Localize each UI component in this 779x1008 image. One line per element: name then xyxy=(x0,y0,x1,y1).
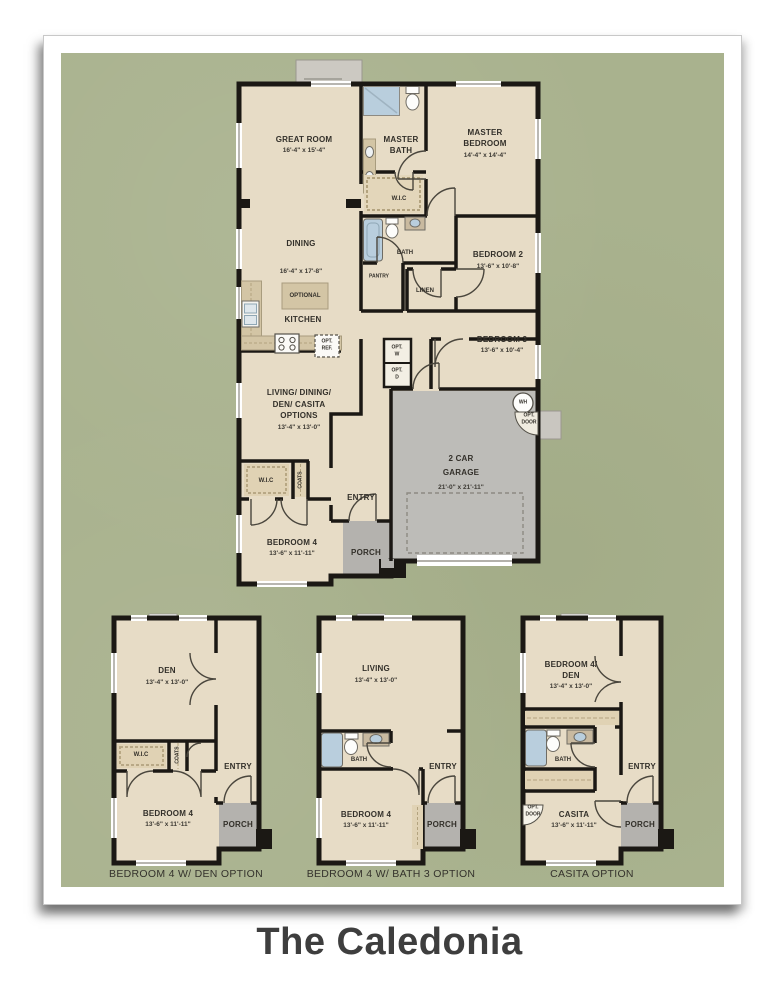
den-option-wic-label: W.I.C xyxy=(134,752,149,758)
den-option-entry-label: ENTRY xyxy=(224,763,252,771)
plan-title: The Caledonia xyxy=(0,921,779,964)
hall-bath-label: BATH xyxy=(397,250,413,256)
den-option-caption: BEDROOM 4 W/ DEN OPTION xyxy=(109,869,263,880)
den-label: DEN xyxy=(158,667,176,675)
master-bath-label-1: MASTER xyxy=(384,136,419,144)
bedroom2-label: BEDROOM 2 xyxy=(473,251,523,259)
opt-door-label-1: OPT. xyxy=(523,414,534,419)
linen-label: LINEN xyxy=(416,288,434,294)
den-option-porch-label: PORCH xyxy=(223,821,253,829)
den-option-coats-label: COATS xyxy=(176,746,181,763)
plan-sheet: GREAT ROOM 16'-4" x 15'-4" MASTER BATH M… xyxy=(43,35,742,905)
den-option-bedroom4-label: BEDROOM 4 xyxy=(143,810,193,818)
optional-island-label: OPTIONAL xyxy=(290,293,321,299)
master-bedroom-label-1: MASTER xyxy=(468,129,503,137)
casita-porch-label: PORCH xyxy=(625,821,655,829)
bath3-option-porch-label: PORCH xyxy=(427,821,457,829)
dining-dims: 16'-4" x 17'-8" xyxy=(280,269,323,276)
bedroom4-wic-label: W.I.C xyxy=(259,478,274,484)
living-dims: 13'-4" x 13'-0" xyxy=(355,678,398,685)
casita-den-label-1: BEDROOM 4/ xyxy=(545,661,598,669)
bedroom3-label: BEDROOM 3 xyxy=(477,336,527,344)
garage-label-1: 2 CAR xyxy=(448,455,473,463)
opt-dryer-label-2: D xyxy=(395,376,399,381)
bath3-option-caption: BEDROOM 4 W/ BATH 3 OPTION xyxy=(307,869,476,880)
kitchen-label: KITCHEN xyxy=(285,316,322,324)
living-options-label-1: LIVING/ DINING/ xyxy=(267,389,331,397)
garage-label-2: GARAGE xyxy=(443,469,479,477)
bedroom4-dims: 13'-6" x 11'-11" xyxy=(269,551,314,558)
bath3-option-bedroom4-label: BEDROOM 4 xyxy=(341,811,391,819)
water-heater-label: WH xyxy=(519,401,527,406)
den-option-bedroom4-dims: 13'-6" x 11'-11" xyxy=(145,822,190,829)
floor-plan-graphic xyxy=(61,53,724,887)
casita-den-label-2: DEN xyxy=(562,672,580,680)
living-label: LIVING xyxy=(362,665,390,673)
dining-label: DINING xyxy=(286,240,315,248)
bath3-option-entry-label: ENTRY xyxy=(429,763,457,771)
opt-dryer-label-1: OPT. xyxy=(391,369,402,374)
opt-washer-label-1: OPT. xyxy=(391,346,402,351)
casita-option-caption: CASITA OPTION xyxy=(550,869,634,880)
casita-entry-label: ENTRY xyxy=(628,763,656,771)
casita-label: CASITA xyxy=(559,811,589,819)
garage-dims: 21'-0" x 21'-11" xyxy=(438,485,484,492)
porch-label: PORCH xyxy=(351,549,381,557)
bedroom3-dims: 13'-6" x 10'-4" xyxy=(481,348,524,355)
master-bedroom-dims: 14'-4" x 14'-4" xyxy=(464,153,507,160)
opt-washer-label-2: W xyxy=(395,353,400,358)
casita-den-dims: 13'-4" x 13'-0" xyxy=(550,684,593,691)
master-bedroom-label-2: BEDROOM xyxy=(463,140,506,148)
casita-dims: 13'-6" x 11'-11" xyxy=(551,823,596,830)
great-room-dims: 16'-4" x 15'-4" xyxy=(283,148,326,155)
den-dims: 13'-4" x 13'-0" xyxy=(146,680,189,687)
master-bath-label-2: BATH xyxy=(390,147,412,155)
living-options-label-3: OPTIONS xyxy=(280,412,317,420)
bedroom2-dims: 13'-6" x 10'-8" xyxy=(477,264,520,271)
master-wic-label: W.I.C xyxy=(392,196,407,202)
opt-ref-label-1: OPT. xyxy=(321,340,332,345)
entry-label: ENTRY xyxy=(347,494,375,502)
pantry-label: PANTRY xyxy=(369,275,389,280)
coats-label: COATS xyxy=(299,471,304,488)
bedroom4-label: BEDROOM 4 xyxy=(267,539,317,547)
opt-door-label-2: DOOR xyxy=(522,421,537,426)
plan-mat: GREAT ROOM 16'-4" x 15'-4" MASTER BATH M… xyxy=(61,53,724,887)
bath3-option-bedroom4-dims: 13'-6" x 11'-11" xyxy=(343,823,388,830)
living-options-label-2: DEN/ CASITA xyxy=(273,401,326,409)
bath3-label: BATH xyxy=(351,757,367,763)
casita-opt-door-label-2: DOOR xyxy=(526,813,541,818)
casita-opt-door-label-1: OPT. xyxy=(527,806,538,811)
great-room-label: GREAT ROOM xyxy=(276,136,333,144)
living-options-dims: 13'-4" x 13'-0" xyxy=(278,425,321,432)
opt-ref-label-2: REF. xyxy=(322,347,333,352)
casita-bath-label: BATH xyxy=(555,757,571,763)
